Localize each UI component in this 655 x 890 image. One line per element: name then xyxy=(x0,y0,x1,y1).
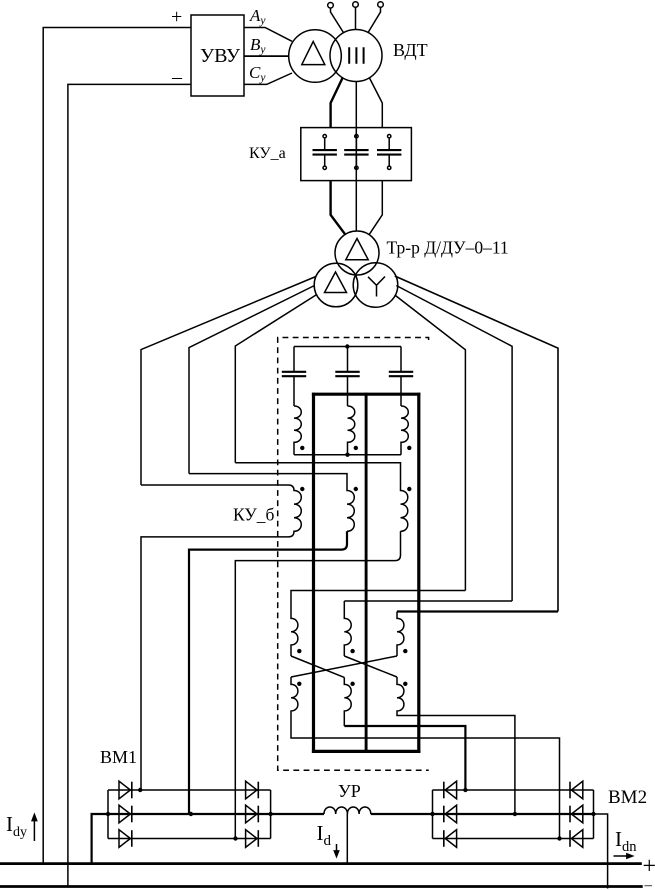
svg-text:–: – xyxy=(171,66,183,88)
svg-text:ВДТ: ВДТ xyxy=(393,40,428,60)
svg-text:Тр-р Д/ДУ–0–11: Тр-р Д/ДУ–0–11 xyxy=(387,238,509,258)
svg-text:ВМ2: ВМ2 xyxy=(608,787,647,808)
svg-text:+: + xyxy=(643,854,655,880)
svg-text:УР: УР xyxy=(338,781,361,801)
svg-text:КУ_б: КУ_б xyxy=(233,505,274,525)
svg-text:КУ_а: КУ_а xyxy=(249,145,286,162)
svg-text:–: – xyxy=(644,877,653,890)
svg-text:УВУ: УВУ xyxy=(200,45,241,67)
svg-text:ВМ1: ВМ1 xyxy=(100,747,137,767)
svg-text:+: + xyxy=(171,6,182,28)
